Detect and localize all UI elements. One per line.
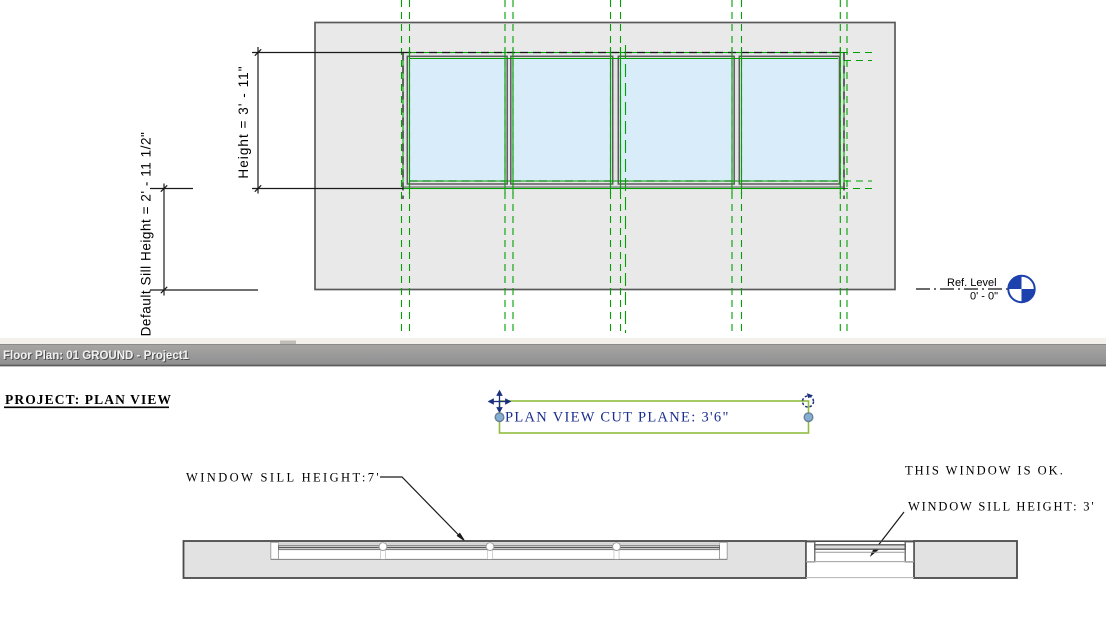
- svg-text:PLAN VIEW CUT PLANE: 3'6": PLAN VIEW CUT PLANE: 3'6": [505, 410, 730, 426]
- svg-text:Default Sill Height = 2' - 11: Default Sill Height = 2' - 11 1/2": [139, 132, 154, 337]
- svg-text:PROJECT: PLAN VIEW: PROJECT: PLAN VIEW: [5, 392, 172, 407]
- svg-text:WINDOW SILL HEIGHT:7': WINDOW SILL HEIGHT:7': [186, 471, 381, 485]
- svg-text:WINDOW SILL HEIGHT: 3': WINDOW SILL HEIGHT: 3': [908, 500, 1095, 514]
- svg-text:Floor Plan: 01 GROUND - Projec: Floor Plan: 01 GROUND - Project1: [3, 350, 190, 362]
- svg-text:Height = 3' - 11": Height = 3' - 11": [236, 65, 251, 178]
- svg-text:THIS WINDOW IS OK.: THIS WINDOW IS OK.: [905, 464, 1065, 478]
- svg-text:0' - 0": 0' - 0": [970, 291, 998, 303]
- svg-text:Ref. Level: Ref. Level: [947, 277, 997, 289]
